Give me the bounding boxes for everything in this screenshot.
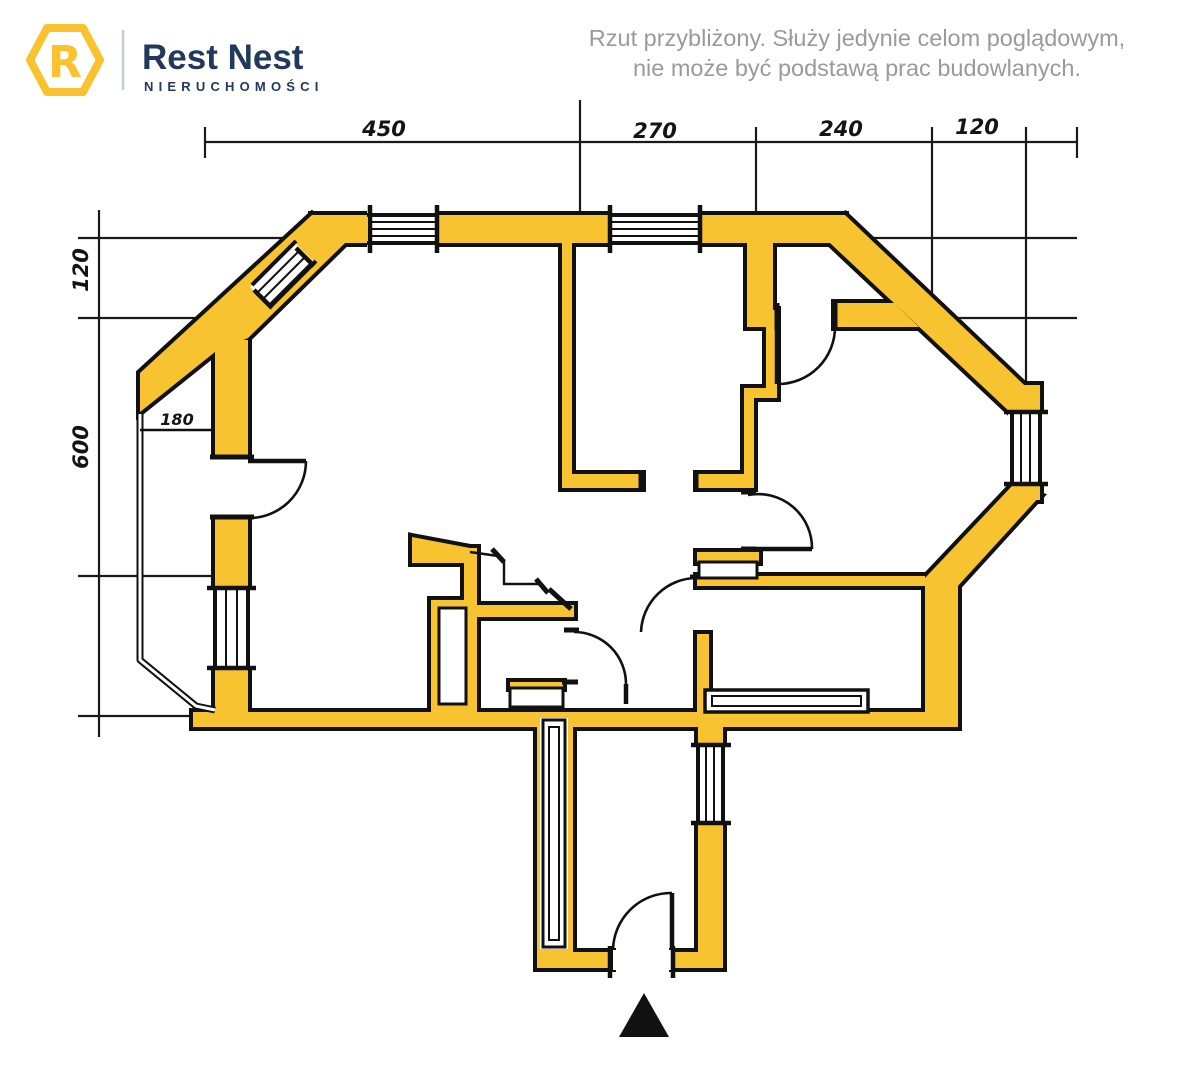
brand-name: Rest Nest (142, 38, 304, 77)
page: 450 270 240 120 120 600 180 (0, 0, 1200, 1073)
window-right (1004, 410, 1048, 486)
opening-bedroom1 (641, 471, 696, 492)
balcony-wall (140, 414, 215, 710)
window-stem-left (540, 718, 568, 949)
door-corridor (562, 630, 626, 704)
entrance-triangle-icon (619, 993, 669, 1037)
dim-label-450: 450 (361, 117, 406, 141)
floor-plan-canvas: 450 270 240 120 120 600 180 (0, 0, 1200, 1073)
dim-label-120-left: 120 (69, 248, 93, 292)
window-left (207, 586, 256, 670)
sill-small (510, 688, 563, 707)
door-top-right-room (777, 303, 835, 384)
dim-label-600-left: 600 (69, 425, 93, 469)
door-left-room (210, 455, 306, 518)
dim-label-240: 240 (819, 117, 863, 141)
logo: R Rest Nest NIERUCHOMOŚCI (30, 28, 324, 94)
dim-label-180: 180 (160, 410, 193, 429)
radiator-long (705, 690, 868, 712)
logo-letter: R (48, 37, 82, 88)
window-top-1 (367, 205, 439, 253)
dim-label-120-top: 120 (955, 115, 999, 139)
door-hall-east (741, 492, 812, 549)
disclaimer-line-2: nie może być podstawą prac budowlanych. (633, 55, 1081, 81)
disclaimer-line-1: Rzut przybliżony. Służy jedynie celom po… (589, 25, 1125, 51)
header: R Rest Nest NIERUCHOMOŚCI Rzut przybliżo… (30, 25, 1125, 94)
disclaimer: Rzut przybliżony. Służy jedynie celom po… (589, 25, 1125, 81)
dim-label-270: 270 (633, 119, 677, 143)
window-stem-right (691, 745, 731, 825)
door-kitchen (470, 549, 571, 609)
shaft-core (439, 608, 466, 704)
door-entrance (610, 893, 673, 978)
brand-subtitle: NIERUCHOMOŚCI (144, 79, 324, 94)
window-top-2 (608, 205, 702, 253)
walls (140, 215, 1040, 968)
radiator-small (699, 562, 757, 578)
